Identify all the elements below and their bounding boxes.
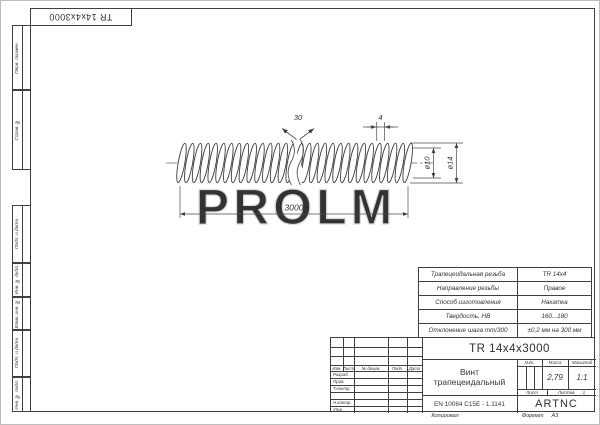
dim-diameters xyxy=(410,143,463,183)
spec-row: Способ изготовления Накатка xyxy=(419,295,591,309)
spec-value: 160...180 xyxy=(518,310,591,323)
dim-pitch xyxy=(363,122,398,141)
row-utv: Утв. xyxy=(332,406,354,413)
spec-label: Твердость, HB xyxy=(419,310,518,323)
sheets-label: Листов xyxy=(558,390,575,395)
scale-label: Масштаб xyxy=(568,359,596,366)
dim-outer-diameter-value: ø14 xyxy=(446,157,455,170)
row-tkontr: Т.контр. xyxy=(332,385,354,392)
spec-row: Твердость, HB 160...180 xyxy=(419,309,591,323)
spec-table: Трапецеидальная резьба TR 14x4 Направлен… xyxy=(418,267,592,338)
dim-pitch-value: 4 xyxy=(378,113,382,122)
title-block: Изм. Лист № докум. Подп. Дата Разраб. Пр… xyxy=(330,337,595,412)
row-nkontr: Н.контр. xyxy=(332,399,354,406)
row-razrab: Разраб. xyxy=(332,371,354,378)
spec-label: Трапецеидальная резьба xyxy=(419,268,518,281)
sheets-value: 1 xyxy=(583,390,586,395)
spec-value: Накатка xyxy=(518,296,591,309)
part-name-line2: трапецеидальный xyxy=(434,377,506,387)
title-designation: TR 14x4x3000 xyxy=(423,338,596,359)
spec-value: TR 14x4 xyxy=(518,268,591,281)
mass-value: 2,79 xyxy=(542,366,568,389)
mass-label: Масса xyxy=(542,359,568,366)
spec-label: Направление резьбы xyxy=(419,282,518,295)
spec-row: Отклонение шага mm/300 ±0,2 мм на 300 мм xyxy=(419,323,591,337)
lit-label: Лит. xyxy=(517,359,542,366)
format-label: Формат xyxy=(522,413,544,419)
spec-value: ±0,2 мм на 300 мм xyxy=(518,324,591,337)
row-blank xyxy=(332,392,354,399)
col-data: Дата xyxy=(407,365,422,371)
col-docnum: № докум. xyxy=(354,365,388,371)
drawing-sheet: TR 14x4x3000 Перв. примен. Справ. № Подп… xyxy=(0,0,600,425)
dim-length-value: 3000 xyxy=(285,203,304,213)
material: EN 10084 C15E - 1.1141 xyxy=(423,396,516,412)
sheet-label: Лист xyxy=(517,389,547,395)
row-prov: Пров. xyxy=(332,378,354,385)
spec-label: Отклонение шага mm/300 xyxy=(419,324,518,337)
scale-value: 1:1 xyxy=(568,366,596,389)
spec-value: Правое xyxy=(518,282,591,295)
dim-thread-angle-value: 30 xyxy=(294,113,303,122)
copied-label: Копировал xyxy=(415,413,475,419)
col-podp: Подп. xyxy=(388,365,407,371)
spec-row: Трапецеидальная резьба TR 14x4 xyxy=(419,268,591,281)
spec-row: Направление резьбы Правое xyxy=(419,281,591,295)
spec-label: Способ изготовления xyxy=(419,296,518,309)
format-value: A3 xyxy=(552,413,559,419)
part-name-line1: Винт xyxy=(460,367,479,377)
company-name: ARTNC xyxy=(517,396,596,412)
dim-inner-diameter-value: ø10 xyxy=(423,156,432,170)
part-name: Винт трапецеидальный xyxy=(423,360,516,394)
sheets-cell: Листов 1 xyxy=(547,389,596,395)
format-cell: Формат A3 xyxy=(505,413,575,419)
dim-thread-angle xyxy=(282,129,314,140)
